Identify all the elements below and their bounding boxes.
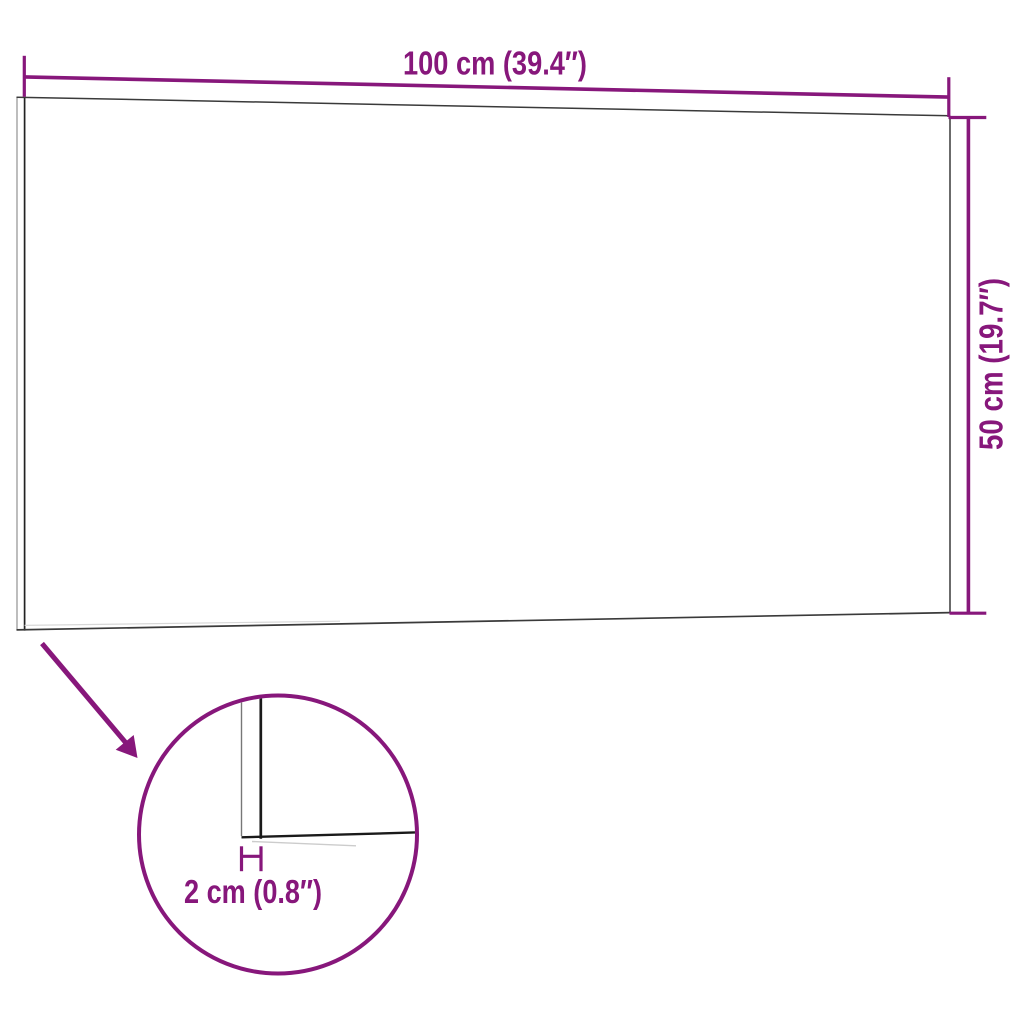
svg-text:50 cm (19.7″): 50 cm (19.7″) [973, 278, 1010, 450]
svg-text:100 cm (39.4″): 100 cm (39.4″) [403, 45, 587, 82]
svg-text:2 cm (0.8″): 2 cm (0.8″) [184, 873, 322, 910]
